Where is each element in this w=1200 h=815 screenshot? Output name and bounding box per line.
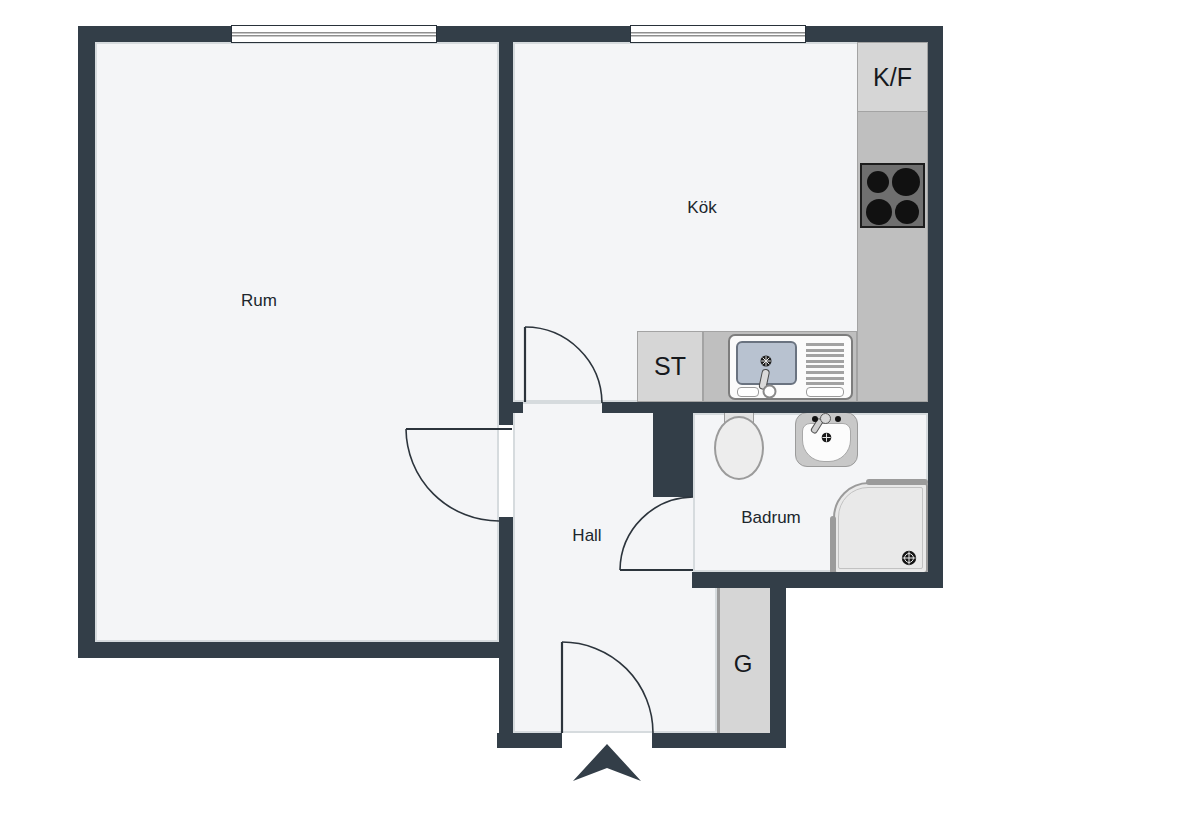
floorplan: K/F ST [0, 0, 1200, 815]
entry-arrow-icon [573, 744, 641, 781]
bathroom-drain-icon [822, 433, 832, 443]
entry-door [562, 642, 653, 733]
kok-door [525, 327, 602, 403]
wardrobe-label: G [734, 650, 753, 678]
room-label-kok: Kök [687, 198, 716, 218]
room-label-hall: Hall [572, 526, 601, 546]
room-label-rum: Rum [241, 291, 277, 311]
room-label-badrum: Badrum [741, 508, 801, 528]
rum-door [406, 429, 512, 521]
door-swings-overlay [0, 0, 1200, 815]
badrum-door [620, 497, 693, 570]
shower-drain-icon [902, 551, 916, 565]
kitchen-faucet-icon [761, 356, 776, 398]
